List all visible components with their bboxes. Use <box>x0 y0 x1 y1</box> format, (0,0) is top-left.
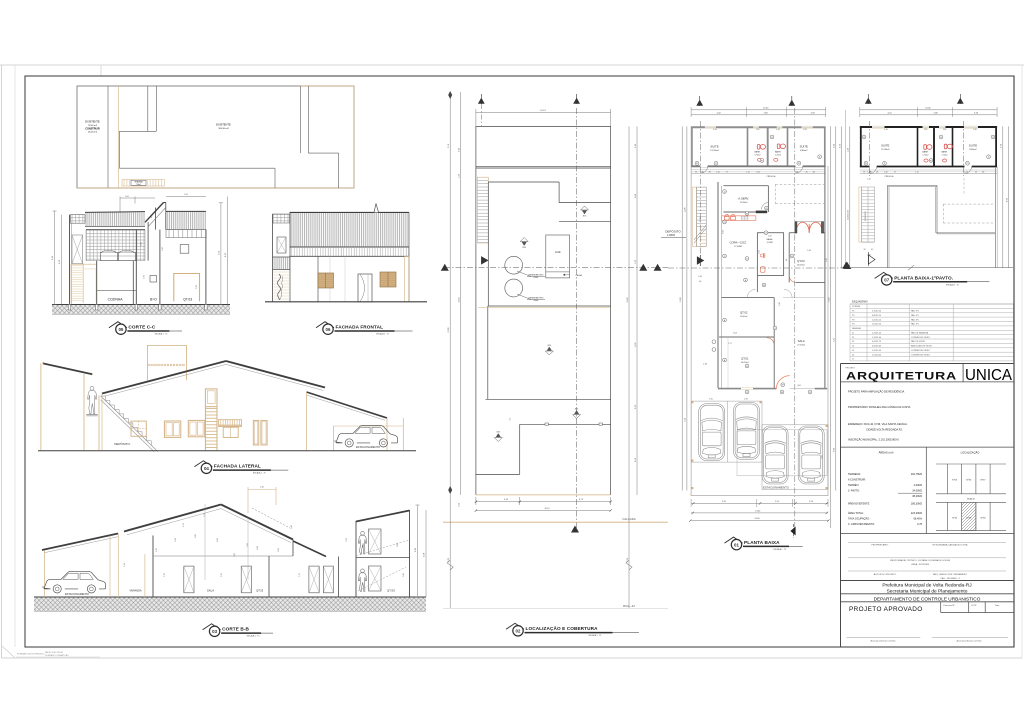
svg-text:PLANTA BAIXA-1ºPAVTO.: PLANTA BAIXA-1ºPAVTO. <box>894 275 953 280</box>
svg-text:P1: P1 <box>761 160 763 162</box>
svg-text:SUITE: SUITE <box>800 145 808 149</box>
svg-text:3,06: 3,06 <box>797 385 800 387</box>
svg-text:,45: ,45 <box>871 249 873 251</box>
svg-text:,95: ,95 <box>863 249 865 251</box>
svg-text:11,00m2: 11,00m2 <box>740 316 749 318</box>
svg-text:2,10: 2,10 <box>156 548 158 552</box>
svg-text:ESCALA 1 : 75: ESCALA 1 : 75 <box>155 333 168 336</box>
svg-text:ARQ. SERGIO R M. FERNANDEZ: ARQ. SERGIO R M. FERNANDEZ <box>933 573 967 576</box>
svg-text:QT.03: QT.03 <box>183 298 192 302</box>
svg-text:,77: ,77 <box>894 172 896 174</box>
svg-text:BANH.: BANH. <box>941 151 948 154</box>
svg-text:PROPRIETÁRIO:: PROPRIETÁRIO: <box>871 544 889 547</box>
svg-text:PROPRIETÁRIO: ROSILEIA ANA CÁS: PROPRIETÁRIO: ROSILEIA ANA CÁSSIA DA COS… <box>848 405 911 409</box>
svg-text:JANELAS: JANELAS <box>852 327 862 330</box>
svg-text:2,70: 2,70 <box>144 275 146 279</box>
svg-text:VARANDA: VARANDA <box>129 589 142 593</box>
svg-text:ROSILEIA ANA CÁSSIA DA COSTA: ROSILEIA ANA CÁSSIA DA COSTA <box>933 544 968 547</box>
svg-text:,48: ,48 <box>786 259 788 262</box>
svg-text:Processo Nº: Processo Nº <box>944 604 955 607</box>
svg-text:1,70m2: 1,70m2 <box>755 154 761 156</box>
svg-text:14,30m,6,35: 14,30m,6,35 <box>848 210 850 220</box>
svg-text:ÁREAS (m²): ÁREAS (m²) <box>879 450 894 454</box>
svg-text:5,14: 5,14 <box>124 563 126 567</box>
svg-text:P3: P3 <box>782 385 784 387</box>
svg-text:GRADEAR: GRADEAR <box>134 181 143 184</box>
svg-text:30%: 30% <box>583 216 587 218</box>
svg-text:ARQUITETURA: ARQUITETURA <box>846 371 957 383</box>
svg-text:0,70X2,10: 0,70X2,10 <box>872 311 882 313</box>
svg-text:TAXA OCUPAÇÃO:: TAXA OCUPAÇÃO: <box>848 518 870 521</box>
svg-text:CORRER DE VIDRO: CORRER DE VIDRO <box>911 350 930 352</box>
svg-text:FACHADA FRONTAL: FACHADA FRONTAL <box>336 325 384 330</box>
svg-text:1,70m2: 1,70m2 <box>942 154 948 156</box>
svg-text:QT.03: QT.03 <box>256 589 263 593</box>
svg-text:TERRÉO:: TERRÉO: <box>848 484 859 487</box>
svg-text:SOBE/DESC: SOBE/DESC <box>865 210 867 221</box>
svg-text:FORMATO A1 ESTENDIDO -: FORMATO A1 ESTENDIDO - <box>17 653 46 656</box>
svg-text:J1: J1 <box>715 163 717 165</box>
svg-text:1,26: 1,26 <box>776 129 780 131</box>
svg-text:1,26: 1,26 <box>943 129 947 131</box>
svg-text:PROJETO: PROJETO <box>846 367 856 369</box>
svg-text:LAJE: LAJE <box>555 251 561 254</box>
svg-text:1,00X2,10: 1,00X2,10 <box>872 324 882 326</box>
svg-text:SALA: SALA <box>798 339 805 343</box>
svg-text:FL Nº: FL Nº <box>972 604 977 607</box>
svg-text:FACHADA LATERAL: FACHADA LATERAL <box>214 464 261 469</box>
svg-text:ESTACIONAMENTO: ESTACIONAMENTO <box>65 592 89 596</box>
svg-text:1,43: 1,43 <box>698 276 702 278</box>
svg-text:ESCALA 1 : 75: ESCALA 1 : 75 <box>253 472 266 475</box>
svg-text:TERRENO:: TERRENO: <box>848 473 861 476</box>
svg-text:CORRER DE VIDRO: CORRER DE VIDRO <box>911 337 930 339</box>
svg-text:,48: ,48 <box>812 171 814 173</box>
svg-text:J5: J5 <box>988 157 990 159</box>
svg-text:06: 06 <box>326 327 331 332</box>
svg-text:3,30: 3,30 <box>779 302 781 306</box>
svg-text:2,40: 2,40 <box>403 573 405 577</box>
svg-text:2,70: 2,70 <box>221 573 223 577</box>
svg-text:Nº36: Nº36 <box>966 517 972 520</box>
svg-text:1,00: 1,00 <box>125 196 129 198</box>
svg-text:01: 01 <box>734 542 739 547</box>
svg-text:1,11: 1,11 <box>915 172 918 174</box>
svg-text:,77: ,77 <box>726 171 728 173</box>
svg-text:13,00: 13,00 <box>754 518 760 520</box>
svg-text:P4: P4 <box>766 208 768 210</box>
svg-text:0,60X0,60: 0,60X0,60 <box>872 346 882 348</box>
svg-text:12,28m2: 12,28m2 <box>710 150 719 152</box>
svg-text:J1: J1 <box>774 328 776 330</box>
svg-text:PORTAS: PORTAS <box>852 305 861 308</box>
svg-text:SUITE: SUITE <box>881 144 889 148</box>
svg-text:30%: 30% <box>547 345 551 347</box>
svg-text:,90: ,90 <box>805 171 807 173</box>
svg-text:10,30: 10,30 <box>763 108 769 110</box>
svg-text:1,42: 1,42 <box>867 179 870 181</box>
svg-text:12,28m2: 12,28m2 <box>881 149 890 151</box>
svg-text:7,00m2: 7,00m2 <box>136 184 141 186</box>
svg-text:27,80: 27,80 <box>448 327 450 333</box>
svg-text:8,80m2: 8,80m2 <box>800 150 808 152</box>
svg-text:4,79: 4,79 <box>183 523 185 527</box>
svg-text:1,50: 1,50 <box>162 247 164 251</box>
svg-text:30%: 30% <box>496 432 500 434</box>
svg-text:1,26: 1,26 <box>924 129 928 131</box>
svg-text:SALA: SALA <box>207 589 214 593</box>
svg-text:1,20: 1,20 <box>716 171 719 173</box>
svg-text:2,70: 2,70 <box>164 573 166 577</box>
svg-text:COPA—COZ.: COPA—COZ. <box>729 241 746 245</box>
svg-text:19,04: 19,04 <box>458 297 460 303</box>
svg-text:LOCALIZAÇÃO E COBERTURA: LOCALIZAÇÃO E COBERTURA <box>526 625 599 631</box>
svg-text:J2: J2 <box>724 256 726 258</box>
svg-text:,80: ,80 <box>701 171 703 173</box>
svg-text:2,77: 2,77 <box>728 343 732 345</box>
svg-text:02: 02 <box>516 629 521 634</box>
svg-text:ÁREA TOTAL:: ÁREA TOTAL: <box>848 512 864 515</box>
svg-text:0,78: 0,78 <box>917 523 922 526</box>
svg-text:3,40: 3,40 <box>257 546 259 550</box>
svg-text:ESCALA 1 : 75: ESCALA 1 : 75 <box>376 333 389 336</box>
svg-text:RESERVATÓRIO: RESERVATÓRIO <box>529 273 544 276</box>
svg-text:P1: P1 <box>865 163 867 165</box>
svg-text:J6: J6 <box>765 233 767 235</box>
svg-text:17,28: 17,28 <box>828 297 830 303</box>
svg-text:Nº34: Nº34 <box>952 517 958 520</box>
svg-text:05: 05 <box>118 327 123 332</box>
svg-text:27,00m2: 27,00m2 <box>797 345 806 347</box>
svg-text:RUA 42: RUA 42 <box>967 497 975 500</box>
svg-text:6,58: 6,58 <box>722 230 724 234</box>
svg-text:07: 07 <box>884 278 889 283</box>
svg-text:4,00M2: 4,00M2 <box>667 234 676 237</box>
svg-text:4,82: 4,82 <box>217 538 219 542</box>
svg-text:3,40: 3,40 <box>291 525 293 529</box>
svg-text:CREA - RJ124496: CREA - RJ124496 <box>911 563 930 566</box>
svg-text:P4: P4 <box>746 213 748 215</box>
svg-text:PLANTA BAIXA: PLANTA BAIXA <box>744 540 780 545</box>
svg-text:1000L: 1000L <box>533 277 538 279</box>
svg-text:PAD DE MADEIRA: PAD DE MADEIRA <box>911 332 929 335</box>
svg-text:J1: J1 <box>884 163 886 165</box>
svg-text:2,31: 2,31 <box>759 250 761 254</box>
svg-text:DOBRADO FORMATO A4: DOBRADO FORMATO A4 <box>45 654 69 657</box>
svg-text:1,23: 1,23 <box>964 172 967 174</box>
svg-text:QT./03: QT./03 <box>387 589 395 593</box>
svg-text:C. APROVEITAMENTO:: C. APROVEITAMENTO: <box>848 523 875 526</box>
svg-text:1,42: 1,42 <box>867 172 870 174</box>
svg-text:QT.01: QT.01 <box>741 357 749 361</box>
svg-text:1,20X1,00: 1,20X1,00 <box>872 350 882 352</box>
svg-text:P1: P1 <box>967 163 969 165</box>
svg-text:1,20X1,00: 1,20X1,00 <box>872 333 882 335</box>
svg-text:2,43: 2,43 <box>807 250 811 252</box>
svg-text:7,50: 7,50 <box>346 538 348 542</box>
svg-text:17,00M2: 17,00M2 <box>734 246 743 248</box>
svg-text:CORRER DE VIDRO: CORRER DE VIDRO <box>911 354 930 356</box>
svg-text:,98: ,98 <box>708 171 710 173</box>
svg-text:1,50: 1,50 <box>184 194 188 196</box>
svg-text:J4: J4 <box>771 137 773 139</box>
svg-text:P1: P1 <box>798 163 800 165</box>
svg-text:,90: ,90 <box>975 172 977 174</box>
svg-text:3,10: 3,10 <box>196 285 198 289</box>
svg-text:4,10: 4,10 <box>884 129 888 131</box>
svg-text:PAD: IPL: PAD: IPL <box>911 310 920 313</box>
svg-text:27,80: 27,80 <box>627 297 629 303</box>
svg-text:ÁREA EXISTENTE: ÁREA EXISTENTE <box>848 503 870 506</box>
svg-text:DEPÓSITO.: DEPÓSITO. <box>114 441 130 446</box>
svg-text:1º PAVTO:: 1º PAVTO: <box>848 489 860 493</box>
svg-text:ESTACIONAMENTO: ESTACIONAMENTO <box>763 485 790 489</box>
svg-text:J3: J3 <box>809 392 811 394</box>
svg-text:1,26: 1,26 <box>756 129 760 131</box>
svg-text:PAD: IPL: PAD: IPL <box>911 318 920 321</box>
svg-text:PAD: IPL: PAD: IPL <box>911 314 920 317</box>
svg-text:7,50: 7,50 <box>247 543 249 547</box>
svg-text:EXISTENTE: EXISTENTE <box>85 120 100 124</box>
svg-text:10,19: 10,19 <box>544 508 550 510</box>
svg-text:BANH.: BANH. <box>775 151 782 154</box>
svg-text:P4: P4 <box>781 392 783 394</box>
svg-text:,73: ,73 <box>863 172 865 174</box>
svg-text:2,45: 2,45 <box>973 129 977 131</box>
svg-text:7,00: 7,00 <box>234 553 236 557</box>
svg-text:185,30 m2: 185,30 m2 <box>218 128 229 130</box>
svg-text:1,00X0,40: 1,00X0,40 <box>872 354 882 356</box>
svg-text:AUTOR DO PROJETO: AUTOR DO PROJETO <box>874 573 897 576</box>
svg-text:PÉRGOLA: PÉRGOLA <box>885 175 894 178</box>
svg-text:4,40: 4,40 <box>826 258 828 262</box>
svg-text:EXISTENTE: EXISTENTE <box>216 123 231 127</box>
svg-text:3,04: 3,04 <box>733 333 737 335</box>
svg-text:QT.02: QT.02 <box>740 311 748 315</box>
svg-text:CONSTRUIR: CONSTRUIR <box>85 127 99 130</box>
svg-text:17,28: 17,28 <box>680 297 682 303</box>
svg-text:A.SERV.: A.SERV. <box>738 197 749 201</box>
svg-text:34,00M2: 34,00M2 <box>912 490 922 493</box>
svg-text:1,20X1,00: 1,20X1,00 <box>872 337 882 339</box>
svg-text:Assinatura/Data/ Carimbo: Assinatura/Data/ Carimbo <box>956 639 982 642</box>
svg-text:J2: J2 <box>992 137 994 139</box>
svg-text:ESCALA 1 : 75: ESCALA 1 : 75 <box>589 634 602 637</box>
svg-text:CORTE C-C: CORTE C-C <box>128 325 155 330</box>
svg-text:04: 04 <box>204 466 209 471</box>
svg-text:5,80: 5,80 <box>141 242 143 246</box>
svg-text:ESTACIONAMENTO: ESTACIONAMENTO <box>356 445 380 449</box>
svg-text:2,24: 2,24 <box>175 538 177 542</box>
svg-text:66,40%: 66,40% <box>914 518 923 521</box>
svg-text:P3: P3 <box>724 222 726 224</box>
svg-text:10,30: 10,30 <box>925 108 931 110</box>
svg-text:1,40: 1,40 <box>260 487 264 489</box>
svg-text:Nº38: Nº38 <box>981 517 987 520</box>
svg-text:1,70m2: 1,70m2 <box>775 154 781 156</box>
svg-text:223,30M2: 223,30M2 <box>911 512 923 515</box>
svg-text:J5: J5 <box>819 157 821 159</box>
svg-text:J2: J2 <box>863 137 865 139</box>
svg-text:38,00M2: 38,00M2 <box>912 495 922 498</box>
svg-text:J4: J4 <box>940 137 942 139</box>
svg-text:14,87m2: 14,87m2 <box>741 362 750 364</box>
svg-text:ENDEREÇO: RUA 42, Nº36, VILA: ENDEREÇO: RUA 42, Nº36, VILA SANTA CECÍL… <box>848 422 908 426</box>
svg-text:P1: P1 <box>930 160 932 162</box>
svg-text:Nº53: Nº53 <box>952 479 958 482</box>
svg-text:PAPEL SULFITE A1: PAPEL SULFITE A1 <box>45 651 64 654</box>
svg-text:Nº35: Nº35 <box>966 479 972 482</box>
svg-text:SUITE: SUITE <box>710 145 718 149</box>
svg-text:,26: ,26 <box>876 172 878 174</box>
svg-text:294,75M2: 294,75M2 <box>911 473 923 476</box>
svg-text:4,10: 4,10 <box>713 129 717 131</box>
svg-text:P1: P1 <box>696 163 698 165</box>
svg-text:A CONSTRUIR:: A CONSTRUIR: <box>848 479 866 482</box>
svg-text:4,55: 4,55 <box>151 214 153 218</box>
svg-text:2,00X1,75: 2,00X1,75 <box>872 341 882 343</box>
svg-text:0,80X2,10: 0,80X2,10 <box>872 315 882 317</box>
svg-text:RESERVATÓRIO: RESERVATÓRIO <box>529 296 544 299</box>
svg-text:CIDADE:VOLTA REDONDA RJ.: CIDADE:VOLTA REDONDA RJ. <box>866 427 903 431</box>
svg-text:2,80: 2,80 <box>397 543 399 547</box>
svg-text:,48: ,48 <box>982 172 984 174</box>
svg-text:1,11: 1,11 <box>746 171 749 173</box>
svg-text:1,75: 1,75 <box>299 573 301 577</box>
svg-text:PAD DE VIDRO: PAD DE VIDRO <box>911 340 926 343</box>
svg-text:5,90: 5,90 <box>278 548 280 552</box>
svg-text:ESCALA 1 : 75: ESCALA 1 : 75 <box>946 283 959 286</box>
svg-text:Nº37: Nº37 <box>981 479 987 482</box>
svg-text:SUITE: SUITE <box>969 144 977 148</box>
svg-text:PROJETO APROVADO: PROJETO APROVADO <box>849 606 923 613</box>
svg-text:QT.03: QT.03 <box>797 259 805 263</box>
svg-text:RESPONSÁVEL TÉCNICO: JUCIANE O: RESPONSÁVEL TÉCNICO: JUCIANE OLIVEIRA DE… <box>890 559 950 562</box>
svg-text:PAD: IPL: PAD: IPL <box>911 323 920 326</box>
svg-text:13,00m2: 13,00m2 <box>797 265 806 267</box>
svg-text:ESQUADRIAS: ESQUADRIAS <box>852 301 868 304</box>
svg-text:10,19: 10,19 <box>540 110 546 112</box>
svg-text:Prefeitura Municipal de Volta: Prefeitura Municipal de Volta Redonda-RJ <box>882 583 972 589</box>
svg-text:J3: J3 <box>746 392 748 394</box>
svg-text:B=O: B=O <box>150 298 157 302</box>
svg-text:COZINHA: COZINHA <box>108 298 124 302</box>
svg-text:CORTE B-B: CORTE B-B <box>222 627 249 632</box>
svg-text:2,80: 2,80 <box>363 543 365 547</box>
svg-text:1,90: 1,90 <box>744 398 748 400</box>
svg-text:2,95: 2,95 <box>803 129 807 131</box>
svg-text:1,20: 1,20 <box>884 172 887 174</box>
svg-text:03: 03 <box>212 629 217 634</box>
svg-text:26,00 m2: 26,00 m2 <box>88 132 98 134</box>
svg-text:185,30M2: 185,30M2 <box>911 503 923 506</box>
svg-text:1,00X2,10: 1,00X2,10 <box>872 319 882 321</box>
svg-text:BANH.: BANH. <box>754 151 761 154</box>
svg-text:1,70m2: 1,70m2 <box>923 154 929 156</box>
svg-text:1,03: 1,03 <box>756 171 759 173</box>
svg-text:12,28m2: 12,28m2 <box>740 202 749 204</box>
svg-text:Assinatura/Data/ Carimbo: Assinatura/Data/ Carimbo <box>870 639 896 642</box>
svg-text:ESCALA 1 : 75: ESCALA 1 : 75 <box>247 635 260 638</box>
svg-text:DEPARTAMENTO DE CONTROLE URBAN: DEPARTAMENTO DE CONTROLE URBANISTICO <box>874 596 981 601</box>
svg-text:4,70M2: 4,70M2 <box>767 242 773 244</box>
svg-text:BASCULAR DE VIDRO: BASCULAR DE VIDRO <box>911 345 932 348</box>
svg-text:J2: J2 <box>724 191 726 193</box>
svg-text:3,00: 3,00 <box>195 534 197 538</box>
svg-text:CAU - 26534685 - 3: CAU - 26534685 - 3 <box>940 577 960 580</box>
svg-text:1,90: 1,90 <box>709 398 713 400</box>
svg-text:1,23: 1,23 <box>795 171 798 173</box>
svg-text:ESCALA 1 : 75: ESCALA 1 : 75 <box>773 548 786 551</box>
svg-text:4,00M2: 4,00M2 <box>914 484 923 487</box>
svg-text:BANH.: BANH. <box>922 151 929 154</box>
svg-text:1000L: 1000L <box>533 300 538 302</box>
svg-text:,46: ,46 <box>699 281 702 283</box>
svg-text:DEPÓSITO: DEPÓSITO <box>665 229 681 234</box>
svg-text:1,45: 1,45 <box>768 236 772 238</box>
svg-text:,73: ,73 <box>695 171 697 173</box>
svg-text:BANH-: BANH- <box>767 238 774 241</box>
svg-text:P2: P2 <box>763 285 765 287</box>
svg-text:13,60: 13,60 <box>755 510 761 512</box>
svg-text:PÉRGOLA: PÉRGOLA <box>767 175 776 178</box>
svg-text:8,80m2: 8,80m2 <box>969 149 977 151</box>
svg-text:30%: 30% <box>522 247 526 249</box>
